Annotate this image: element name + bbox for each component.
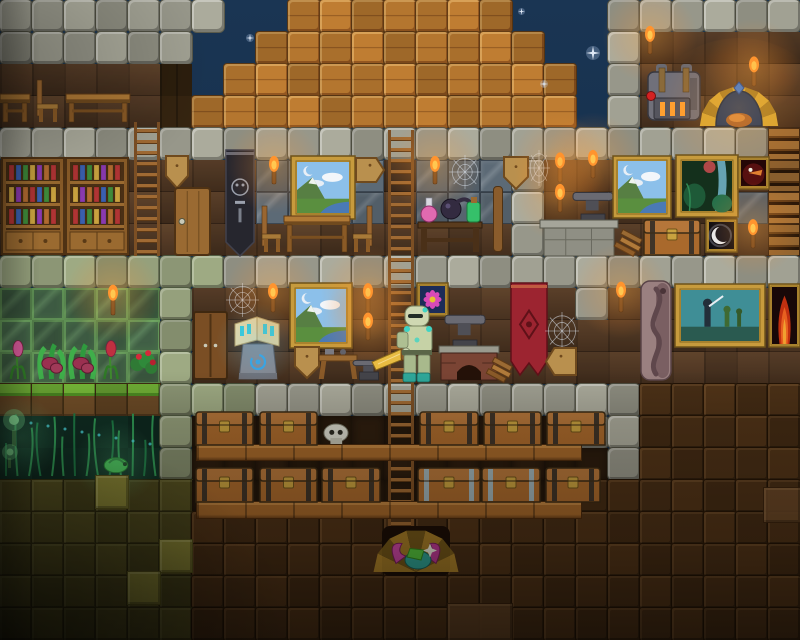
- tile-dirt-block[interactable]: [384, 576, 416, 608]
- tile-dirt-block[interactable]: [704, 384, 736, 416]
- tile-dirt-block[interactable]: [704, 480, 736, 512]
- tile-mud-block[interactable]: [160, 480, 192, 512]
- treasure-shrine[interactable]: [382, 526, 450, 576]
- tile-dirt-block[interactable]: [736, 576, 768, 608]
- tile-mud-block[interactable]: [96, 576, 128, 608]
- mud-light-1[interactable]: [96, 476, 128, 508]
- plant-tulip-1: [6, 342, 30, 379]
- tile-wood-beam-block[interactable]: [480, 0, 512, 32]
- tile-wood-beam-block[interactable]: [512, 32, 544, 64]
- mud-light-2[interactable]: [160, 540, 192, 572]
- tile-mud-block[interactable]: [32, 544, 64, 576]
- storage-chest-f2[interactable]: [644, 220, 700, 255]
- tile-mossy-stone[interactable]: [160, 352, 192, 384]
- tile-wood-beam-block[interactable]: [288, 64, 320, 96]
- painting-mountain-2: [613, 156, 671, 218]
- tile-stone-brick[interactable]: [672, 0, 704, 32]
- tile-dirt-block[interactable]: [736, 384, 768, 416]
- torch-f2-1: [266, 156, 282, 184]
- tile-stone-brick[interactable]: [128, 0, 160, 32]
- torch-moon: [745, 219, 761, 248]
- tile-dirt-block[interactable]: [576, 608, 608, 640]
- painting-moon: [706, 219, 737, 252]
- tile-plank-wall: [0, 64, 32, 96]
- tile-dirt-block[interactable]: [352, 608, 384, 640]
- tile-dirt-block[interactable]: [672, 384, 704, 416]
- tile-dirt-block[interactable]: [768, 416, 800, 448]
- dining-table[interactable]: [284, 216, 350, 252]
- tile-mud-block[interactable]: [64, 512, 96, 544]
- chest-r2-2[interactable]: [260, 468, 317, 502]
- tile-wood-beam-block[interactable]: [448, 64, 480, 96]
- tile-dirt-block[interactable]: [736, 448, 768, 480]
- tile-dirt-block[interactable]: [608, 480, 640, 512]
- tile-mossy-stone[interactable]: [160, 256, 192, 288]
- chest-r1-2[interactable]: [260, 412, 317, 445]
- greenhouse-torch: [105, 284, 121, 315]
- player-character[interactable]: [370, 306, 434, 384]
- carved-pillar: [640, 281, 672, 380]
- painting-battle: [675, 284, 765, 347]
- tile-wood-beam-block[interactable]: [544, 96, 576, 128]
- tile-wood-beam-block[interactable]: [320, 0, 352, 32]
- tile-stone-brick[interactable]: [736, 128, 768, 160]
- chest-r1-4[interactable]: [484, 412, 541, 445]
- torch-f3-1: [265, 283, 281, 312]
- tile-mossy-stone[interactable]: [128, 256, 160, 288]
- tile-wood-beam-block[interactable]: [416, 64, 448, 96]
- skull-item: [322, 424, 350, 444]
- tile-stone-brick[interactable]: [608, 32, 640, 64]
- tile-wood-beam-block[interactable]: [416, 32, 448, 64]
- tile-plank-wall: [128, 64, 160, 96]
- tile-dirt-block[interactable]: [672, 544, 704, 576]
- tile-mud-block[interactable]: [32, 576, 64, 608]
- tile-greenhouse-glass: [64, 288, 96, 320]
- tile-stone-brick[interactable]: [608, 64, 640, 96]
- tile-mud-block[interactable]: [32, 608, 64, 640]
- tile-wood-beam-block[interactable]: [192, 96, 224, 128]
- tile-wood-beam-block[interactable]: [256, 32, 288, 64]
- tile-platform-shelf[interactable]: [768, 192, 800, 224]
- tile-mud-block[interactable]: [128, 512, 160, 544]
- tile-stone-brick[interactable]: [192, 128, 224, 160]
- tile-mud-block[interactable]: [32, 480, 64, 512]
- attic-torch: [642, 26, 658, 54]
- tile-dirt-block[interactable]: [640, 384, 672, 416]
- tile-stone-brick[interactable]: [736, 0, 768, 32]
- tile-stone-brick[interactable]: [0, 0, 32, 32]
- tile-dirt-block[interactable]: [416, 576, 448, 608]
- tile-stone-brick[interactable]: [352, 128, 384, 160]
- tile-stone-brick[interactable]: [480, 256, 512, 288]
- tile-dirt-block[interactable]: [320, 576, 352, 608]
- tile-dirt-block[interactable]: [288, 576, 320, 608]
- tile-stone-brick[interactable]: [608, 0, 640, 32]
- tile-wood-beam-block[interactable]: [480, 32, 512, 64]
- tile-plank-wall: [704, 32, 736, 64]
- tile-stone-brick[interactable]: [32, 0, 64, 32]
- tile-wood-beam-block[interactable]: [320, 96, 352, 128]
- tile-stone-brick[interactable]: [608, 448, 640, 480]
- tile-dirt-block[interactable]: [672, 512, 704, 544]
- star-4: [518, 8, 525, 15]
- tile-stone-brick[interactable]: [96, 0, 128, 32]
- tile-mud-block[interactable]: [128, 480, 160, 512]
- chest-r1-1[interactable]: [196, 412, 253, 445]
- chest-r1-5[interactable]: [547, 412, 605, 445]
- tile-mossy-stone[interactable]: [160, 448, 192, 480]
- chest-r2-3[interactable]: [322, 468, 380, 502]
- star-2: [246, 34, 254, 42]
- tile-dirt-block[interactable]: [768, 608, 800, 640]
- tile-plank-wall: [608, 320, 640, 352]
- tile-wood-beam-block[interactable]: [320, 64, 352, 96]
- plant-venus-1: [35, 340, 68, 379]
- torch-f3-4: [612, 281, 630, 312]
- tile-wood-beam-block[interactable]: [224, 96, 256, 128]
- tile-wood-beam-block[interactable]: [288, 0, 320, 32]
- tile-dirt-block[interactable]: [384, 608, 416, 640]
- extractinator-machine[interactable]: [646, 64, 702, 124]
- tile-greenhouse-glass: [32, 288, 64, 320]
- tile-dirt-block[interactable]: [320, 608, 352, 640]
- tile-dirt-block[interactable]: [608, 512, 640, 544]
- tile-dirt-block[interactable]: [640, 608, 672, 640]
- painting-mountain-3: [290, 283, 352, 348]
- tile-stone-brick[interactable]: [0, 32, 32, 64]
- tile-dirt-block[interactable]: [672, 576, 704, 608]
- painting-fire: [769, 284, 800, 347]
- tile-plank-wall: [704, 352, 736, 384]
- tile-plank-wall: [672, 32, 704, 64]
- wooden-wardrobe[interactable]: [194, 312, 227, 379]
- tile-dirt-block[interactable]: [544, 576, 576, 608]
- tile-dirt-block[interactable]: [672, 448, 704, 480]
- dining-chair-left[interactable]: [261, 206, 283, 252]
- tile-mud-block[interactable]: [0, 576, 32, 608]
- spider-web-corner: [528, 150, 550, 186]
- spell-book-altar[interactable]: [233, 308, 281, 379]
- tile-dirt-block[interactable]: [544, 608, 576, 640]
- glowing-puffs: [0, 406, 40, 470]
- tile-greenhouse-glass: [0, 288, 32, 320]
- tile-mud-block[interactable]: [96, 512, 128, 544]
- tile-dirt-block[interactable]: [768, 384, 800, 416]
- tile-dirt-block[interactable]: [704, 416, 736, 448]
- tile-dirt-block[interactable]: [672, 608, 704, 640]
- tile-mud-block[interactable]: [0, 480, 32, 512]
- tile-dirt-block[interactable]: [704, 448, 736, 480]
- tile-dirt-block[interactable]: [288, 544, 320, 576]
- tile-mud-block[interactable]: [64, 480, 96, 512]
- tile-plank-wall: [736, 352, 768, 384]
- tile-dirt-block[interactable]: [736, 416, 768, 448]
- tile-stone-brick[interactable]: [64, 128, 96, 160]
- tile-mud-block[interactable]: [160, 576, 192, 608]
- sign-shield[interactable]: [295, 347, 319, 378]
- tile-dirt-block[interactable]: [608, 608, 640, 640]
- tile-stone-brick[interactable]: [96, 32, 128, 64]
- chest-r1-3[interactable]: [420, 412, 478, 445]
- tile-plank-wall: [96, 64, 128, 96]
- tile-dirt-block[interactable]: [352, 576, 384, 608]
- tile-dirt-block[interactable]: [640, 544, 672, 576]
- painting-jungle: [676, 155, 738, 217]
- torch-forge-3: [552, 184, 568, 212]
- tile-dirt-block[interactable]: [256, 576, 288, 608]
- black-banner: [226, 150, 254, 256]
- wooden-door[interactable]: [175, 188, 210, 255]
- tile-wood-beam-block[interactable]: [352, 64, 384, 96]
- tile-stone-brick[interactable]: [0, 128, 32, 160]
- tile-stone-brick[interactable]: [544, 256, 576, 288]
- tile-platform-shelf[interactable]: [768, 224, 800, 256]
- tile-wood-beam-block[interactable]: [320, 32, 352, 64]
- tile-dirt-block[interactable]: [512, 544, 544, 576]
- tile-stone-brick[interactable]: [128, 32, 160, 64]
- tile-dirt-block[interactable]: [768, 448, 800, 480]
- spider-web-f3-2: [545, 312, 579, 350]
- tile-dirt-block[interactable]: [192, 608, 224, 640]
- dirt-light-2[interactable]: [764, 488, 800, 522]
- tile-dirt-block[interactable]: [608, 576, 640, 608]
- tile-stone-brick[interactable]: [704, 0, 736, 32]
- tile-dirt-block[interactable]: [224, 576, 256, 608]
- tile-wood-beam-block[interactable]: [416, 0, 448, 32]
- tile-stone-brick[interactable]: [64, 32, 96, 64]
- chest-r2-5[interactable]: [482, 468, 540, 502]
- anvil-f2[interactable]: [573, 186, 613, 222]
- tile-dirt-block[interactable]: [672, 416, 704, 448]
- wood-slope: [491, 354, 513, 380]
- glowing-critter: [102, 452, 130, 474]
- sign-pennant-library[interactable]: [166, 156, 188, 188]
- tile-dirt-block[interactable]: [576, 576, 608, 608]
- star-3: [540, 80, 548, 88]
- tile-stone-brick[interactable]: [576, 256, 608, 288]
- tile-wood-beam-block[interactable]: [352, 96, 384, 128]
- tile-mossy-stone[interactable]: [160, 288, 192, 320]
- wood-debris: [619, 226, 643, 254]
- tile-dirt-block[interactable]: [768, 576, 800, 608]
- tile-wood-beam-block[interactable]: [448, 96, 480, 128]
- red-banner: [511, 283, 547, 375]
- tile-mud-block[interactable]: [64, 576, 96, 608]
- tile-mud-block[interactable]: [32, 512, 64, 544]
- tile-wood-beam-block[interactable]: [288, 32, 320, 64]
- tile-mossy-stone[interactable]: [160, 384, 192, 416]
- bookshelf-right[interactable]: [66, 158, 128, 254]
- tile-wood-beam-block[interactable]: [384, 32, 416, 64]
- tavern-chair[interactable]: [36, 80, 60, 122]
- floor-plank-lower: [196, 501, 582, 519]
- tile-dirt-block[interactable]: [704, 544, 736, 576]
- tile-mossy-stone[interactable]: [160, 320, 192, 352]
- tile-platform-shelf[interactable]: [768, 160, 800, 192]
- tile-mud-block[interactable]: [128, 608, 160, 640]
- tile-wood-beam-block[interactable]: [256, 96, 288, 128]
- tile-dirt-block[interactable]: [704, 608, 736, 640]
- tile-wood-beam-block[interactable]: [544, 64, 576, 96]
- tile-plank-wall: [608, 352, 640, 384]
- tile-wood-beam-block[interactable]: [352, 32, 384, 64]
- tile-dirt-block[interactable]: [288, 608, 320, 640]
- tile-mossy-stone[interactable]: [0, 256, 32, 288]
- tile-stone-brick[interactable]: [576, 288, 608, 320]
- tile-stone-brick[interactable]: [32, 128, 64, 160]
- sign-arrow-left[interactable]: [546, 348, 576, 375]
- tile-stone-brick[interactable]: [768, 0, 800, 32]
- tile-dark-plank-wall: [160, 64, 192, 96]
- alchemy-table[interactable]: [417, 188, 483, 252]
- tile-dirt-block[interactable]: [256, 544, 288, 576]
- tile-greenhouse-glass: [128, 288, 160, 320]
- tile-wood-beam-block[interactable]: [480, 64, 512, 96]
- torch-forge-2: [585, 150, 601, 178]
- spider-web-f2: [449, 155, 481, 189]
- tile-stone-brick[interactable]: [608, 384, 640, 416]
- plant-roses: [128, 342, 159, 379]
- tile-dirt-block[interactable]: [192, 544, 224, 576]
- floor-plank-upper: [196, 444, 582, 461]
- tile-mud-block[interactable]: [64, 544, 96, 576]
- wall-torch-right: [746, 56, 762, 86]
- tile-dirt-block[interactable]: [224, 544, 256, 576]
- painting-mountain-f2: [291, 156, 355, 219]
- tile-dirt-block[interactable]: [576, 544, 608, 576]
- tile-dirt-block[interactable]: [640, 576, 672, 608]
- chest-r2-1[interactable]: [196, 468, 253, 502]
- tile-dirt-block[interactable]: [672, 480, 704, 512]
- tile-mud-block[interactable]: [0, 608, 32, 640]
- tile-dirt-block[interactable]: [640, 448, 672, 480]
- stone-hearth: [540, 220, 618, 256]
- tile-dirt-block[interactable]: [480, 544, 512, 576]
- tile-stone-brick[interactable]: [480, 128, 512, 160]
- tile-plank-wall: [768, 352, 800, 384]
- tile-dirt-block[interactable]: [544, 544, 576, 576]
- tile-plank-wall: [768, 64, 800, 96]
- hearth-food-shrine[interactable]: [710, 86, 768, 126]
- tile-dark-plank-wall: [160, 96, 192, 128]
- tile-wood-beam-block[interactable]: [384, 96, 416, 128]
- tile-wood-beam-block[interactable]: [384, 0, 416, 32]
- tile-dirt-block[interactable]: [320, 544, 352, 576]
- tile-mud-block[interactable]: [0, 544, 32, 576]
- dirt-light-1[interactable]: [448, 604, 512, 640]
- tile-mud-block[interactable]: [96, 608, 128, 640]
- tile-plank-wall: [672, 352, 704, 384]
- plant-tulip-2: [100, 342, 122, 379]
- tile-stone-brick[interactable]: [352, 384, 384, 416]
- tile-dirt-block[interactable]: [640, 480, 672, 512]
- plant-venus-2: [66, 340, 99, 379]
- tile-dirt-block[interactable]: [416, 608, 448, 640]
- tile-wood-beam-block[interactable]: [416, 96, 448, 128]
- tile-stone-brick[interactable]: [32, 32, 64, 64]
- tile-dirt-block[interactable]: [224, 608, 256, 640]
- tile-plank-wall: [64, 64, 96, 96]
- chest-r2-6[interactable]: [546, 468, 600, 502]
- mud-light-3[interactable]: [128, 572, 160, 604]
- tile-wood-beam-block[interactable]: [288, 96, 320, 128]
- tile-stone-brick[interactable]: [160, 0, 192, 32]
- tile-mud-block[interactable]: [96, 544, 128, 576]
- tile-stone-brick[interactable]: [608, 96, 640, 128]
- tile-stone-brick[interactable]: [448, 256, 480, 288]
- tile-dirt-block[interactable]: [192, 576, 224, 608]
- tile-stone-brick[interactable]: [192, 0, 224, 32]
- tile-stone-brick[interactable]: [608, 416, 640, 448]
- tile-wood-beam-block[interactable]: [448, 32, 480, 64]
- tile-dirt-block[interactable]: [768, 544, 800, 576]
- tile-dirt-block[interactable]: [704, 576, 736, 608]
- bookshelf-left[interactable]: [2, 158, 64, 254]
- tile-plank-wall: [576, 320, 608, 352]
- tile-plank-wall: [576, 352, 608, 384]
- tavern-table-small[interactable]: [0, 94, 30, 122]
- tile-dirt-block[interactable]: [640, 512, 672, 544]
- tile-mossy-stone[interactable]: [64, 256, 96, 288]
- tile-stone-brick[interactable]: [160, 32, 192, 64]
- torch-forge-1: [552, 152, 568, 182]
- ladder-left[interactable]: [134, 122, 160, 256]
- tile-mossy-stone[interactable]: [160, 416, 192, 448]
- tile-wood-beam-block[interactable]: [352, 0, 384, 32]
- tile-dirt-block[interactable]: [256, 608, 288, 640]
- game-world-viewport[interactable]: [0, 0, 800, 640]
- tile-dirt-block[interactable]: [640, 416, 672, 448]
- wood-beam-pole: [493, 186, 503, 252]
- tile-dirt-block[interactable]: [736, 544, 768, 576]
- tavern-table[interactable]: [66, 94, 130, 122]
- star-1: [586, 46, 600, 60]
- tile-stone-brick[interactable]: [320, 384, 352, 416]
- tile-mud-block[interactable]: [0, 512, 32, 544]
- tile-dirt-block[interactable]: [608, 544, 640, 576]
- painting-demon: [738, 157, 769, 189]
- tile-wood-beam-block[interactable]: [480, 96, 512, 128]
- tile-plank-wall: [768, 32, 800, 64]
- tile-dirt-block[interactable]: [736, 608, 768, 640]
- tile-stone-brick[interactable]: [96, 128, 128, 160]
- tile-mossy-stone[interactable]: [32, 256, 64, 288]
- dining-chair-right[interactable]: [351, 206, 373, 252]
- tile-wood-beam-block[interactable]: [256, 64, 288, 96]
- work-bench[interactable]: [319, 349, 357, 379]
- tile-mossy-stone[interactable]: [192, 256, 224, 288]
- sign-pennant-2[interactable]: [504, 157, 528, 189]
- tile-dirt-block[interactable]: [512, 576, 544, 608]
- tile-platform-shelf[interactable]: [768, 128, 800, 160]
- tile-stone-brick[interactable]: [64, 0, 96, 32]
- anvil-large[interactable]: [445, 308, 485, 348]
- tile-wood-beam-block[interactable]: [448, 0, 480, 32]
- tile-wood-beam-block[interactable]: [224, 64, 256, 96]
- tile-mud-block[interactable]: [64, 608, 96, 640]
- tile-mud-block[interactable]: [160, 608, 192, 640]
- torch-f2-2: [427, 156, 443, 184]
- tile-wood-beam-block[interactable]: [512, 96, 544, 128]
- sign-arrow-right[interactable]: [356, 158, 384, 182]
- chest-r2-4[interactable]: [418, 468, 480, 502]
- tile-dirt-block[interactable]: [512, 608, 544, 640]
- tile-dirt-block[interactable]: [704, 512, 736, 544]
- tile-wood-beam-block[interactable]: [384, 64, 416, 96]
